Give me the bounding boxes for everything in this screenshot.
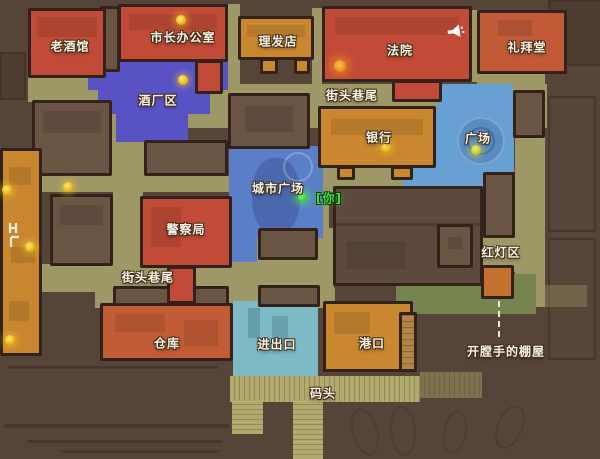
pier-leg [293,400,323,459]
building-bank-annex [391,166,413,180]
street-alley [321,228,333,308]
building [513,90,545,138]
building [32,100,112,176]
building-barber-annex [294,58,310,74]
faded-building-sketch [0,52,26,100]
label-court[interactable]: 法院 [387,42,413,59]
stairs-to-dock [399,312,417,372]
label-street-corner-w[interactable]: 街头巷尾 [122,269,174,286]
glowing-window-marker [334,60,346,72]
quest-marker-dot [5,335,15,345]
city-map: 老酒馆 市长办公室 理发店 法院 礼拜堂 酒厂区 街头巷尾 银行 广场 城市广场… [0,0,600,459]
building [144,140,228,176]
zone-city-square[interactable] [229,238,257,262]
dock-sketch-line [4,424,229,428]
label-city-square[interactable]: 城市广场 [252,180,304,197]
megaphone-icon [446,23,466,44]
label-red-light-district[interactable]: 红灯区 [481,244,520,261]
zone-brewery-district[interactable] [116,112,188,142]
building [483,172,515,238]
faded-building-sketch [548,96,596,232]
dock-sketch-line [28,440,223,443]
label-barber-shop[interactable]: 理发店 [258,33,297,50]
dock-sketch-line [8,366,218,369]
street-faded [545,285,587,307]
building-warehouse[interactable] [100,303,233,361]
label-police-station[interactable]: 警察局 [166,221,205,238]
street [113,190,143,274]
building-ripper-shack[interactable] [481,265,514,299]
label-import-export[interactable]: 进出口 [257,336,296,353]
building [258,285,320,307]
quest-marker-dot [2,185,12,195]
label-street-corner-ne[interactable]: 街头巷尾 [326,87,378,104]
label-old-tavern[interactable]: 老酒馆 [50,38,89,55]
building-lodging-row [0,148,42,356]
label-mayor-office[interactable]: 市长办公室 [150,29,215,46]
label-chapel[interactable]: 礼拜堂 [507,39,546,56]
quest-marker-dot [471,145,481,155]
player-label: [你] [316,190,342,207]
ripper-shack-callout-line [498,301,500,337]
boat-sketch [489,401,530,453]
quest-marker-dot [178,75,188,85]
building-court-annex [392,80,442,102]
building [228,93,310,149]
building-mayor-office-annex [195,60,223,94]
bunk-icon [8,222,22,252]
building [258,228,318,260]
label-brewery-district[interactable]: 酒厂区 [138,92,177,109]
label-bank[interactable]: 银行 [366,129,392,146]
city-square-statue-ring [283,152,313,182]
boat-sketch [388,405,418,457]
boat-sketch [439,408,470,455]
quest-marker-dot [176,15,186,25]
building [50,194,113,266]
pier-faded [420,372,482,398]
label-port[interactable]: 港口 [359,335,385,352]
boat-sketch [346,405,384,458]
pier-leg [232,400,263,434]
building-barber-annex [260,58,278,74]
label-warehouse[interactable]: 仓库 [154,335,180,352]
quest-marker-dot [25,242,35,252]
label-dock[interactable]: 码头 [310,385,336,402]
dock-sketch-line [60,450,220,453]
label-plaza[interactable]: 广场 [465,130,491,147]
label-ripper-shack[interactable]: 开膛手的棚屋 [467,343,545,360]
quest-marker-dot [63,182,73,192]
building-bank-annex [337,166,355,180]
building [437,224,473,268]
import-export-stairs [248,308,260,338]
